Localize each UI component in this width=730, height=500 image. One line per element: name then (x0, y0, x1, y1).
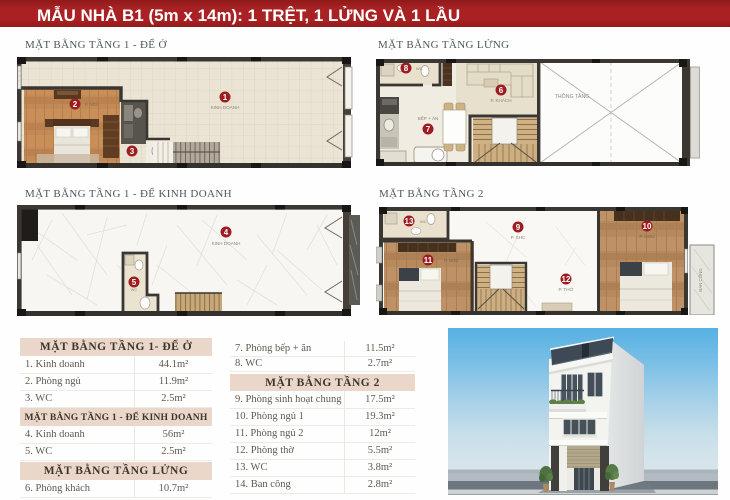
svg-text:P. KHÁCH: P. KHÁCH (490, 97, 511, 103)
svg-text:P. NGỦ: P. NGỦ (639, 233, 654, 239)
svg-text:P. SHC: P. SHC (511, 235, 526, 240)
svg-text:THÔNG TẦNG: THÔNG TẦNG (555, 93, 590, 100)
svg-text:12: 12 (562, 275, 571, 284)
svg-text:2: 2 (73, 100, 78, 109)
svg-text:WC: WC (420, 219, 427, 224)
svg-text:6: 6 (499, 86, 504, 95)
svg-text:P. NGỦ: P. NGỦ (444, 258, 459, 263)
svg-text:3: 3 (130, 147, 135, 156)
svg-text:5: 5 (132, 278, 137, 287)
svg-text:KINH DOANH: KINH DOANH (211, 105, 240, 110)
svg-text:8: 8 (404, 64, 409, 73)
svg-text:11: 11 (424, 256, 433, 265)
svg-text:7: 7 (426, 125, 431, 134)
svg-text:10: 10 (643, 222, 652, 231)
svg-text:BAN CÔNG: BAN CÔNG (698, 268, 703, 292)
svg-text:1: 1 (223, 93, 228, 102)
svg-text:BẾP + ĂN: BẾP + ĂN (418, 115, 439, 121)
svg-text:13: 13 (405, 217, 414, 226)
svg-text:WC: WC (416, 66, 423, 71)
svg-text:WC: WC (131, 287, 138, 292)
svg-text:KINH DOANH: KINH DOANH (212, 241, 241, 246)
svg-text:P. THỜ: P. THỜ (558, 286, 573, 292)
svg-text:P. NGỦ: P. NGỦ (85, 102, 99, 107)
svg-text:9: 9 (516, 223, 521, 232)
svg-text:4: 4 (224, 228, 229, 237)
